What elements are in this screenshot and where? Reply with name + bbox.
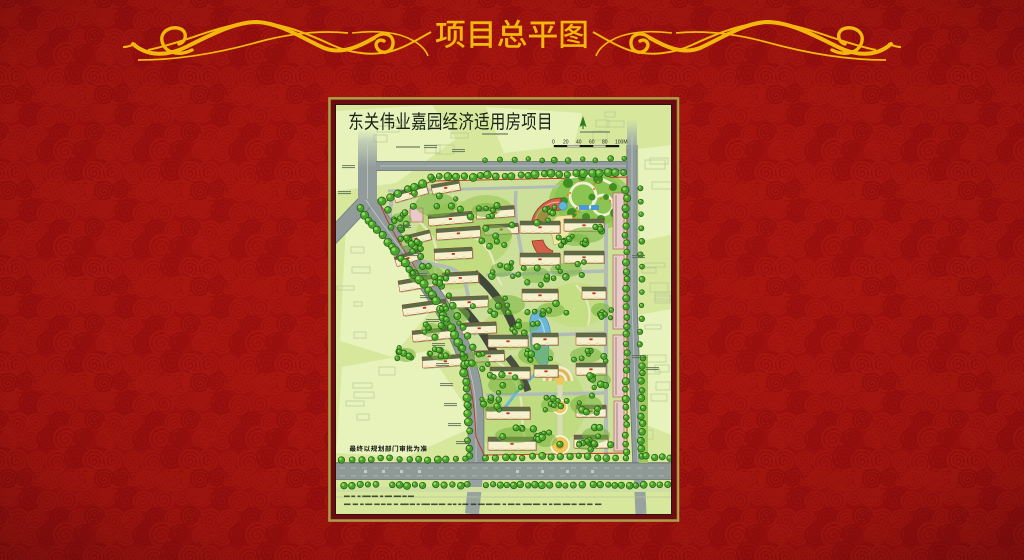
svg-text:0: 0	[552, 140, 555, 146]
svg-text:40: 40	[576, 140, 582, 146]
svg-text:80: 80	[602, 140, 608, 146]
svg-text:20: 20	[563, 140, 569, 146]
svg-text:60: 60	[589, 140, 595, 146]
svg-text:100M: 100M	[615, 140, 628, 146]
